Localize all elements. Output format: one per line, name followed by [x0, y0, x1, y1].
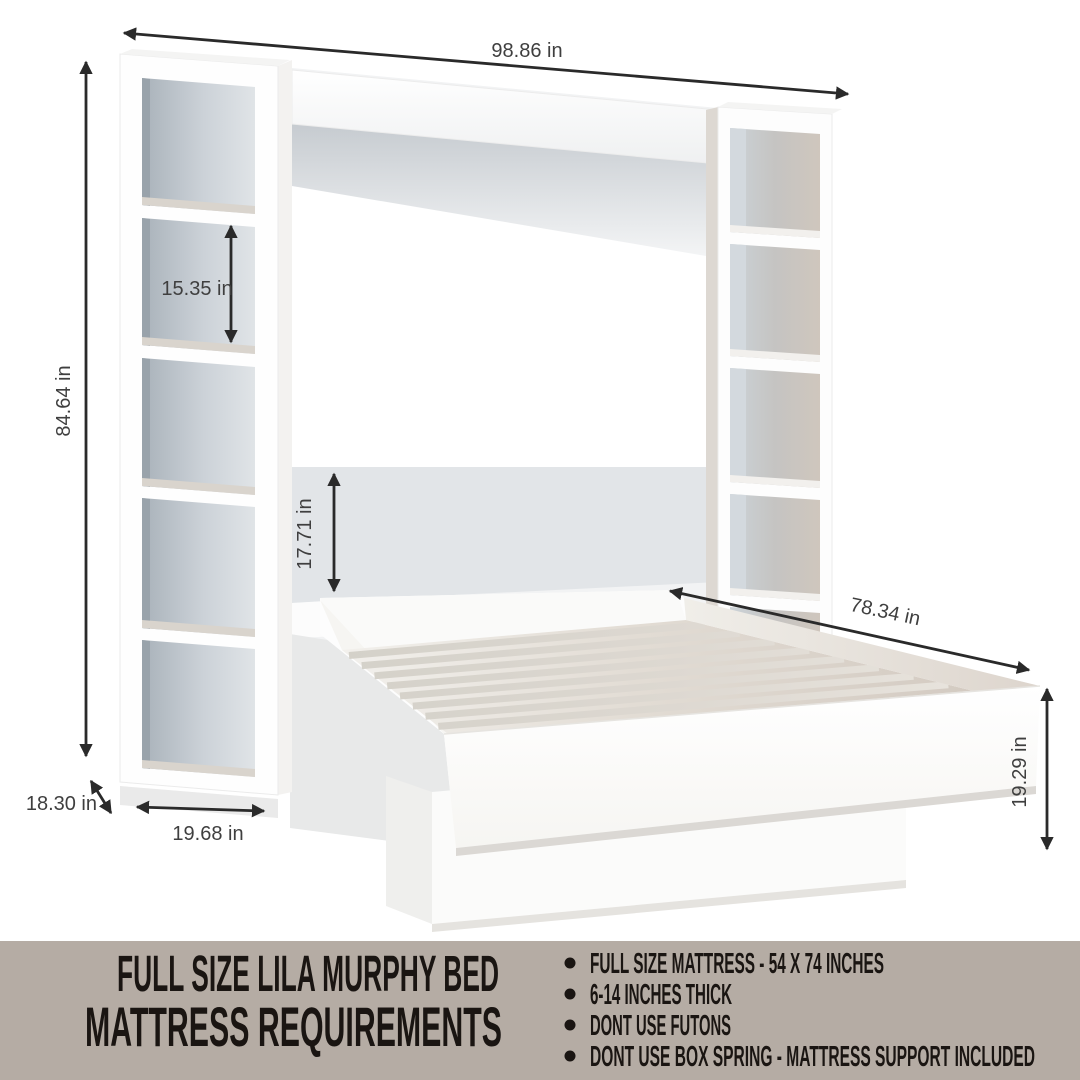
pedestal-side-face [386, 776, 432, 924]
tower-depth-label: 18.30 in [26, 793, 97, 815]
panel-height-label: 17.71 in [294, 498, 316, 569]
bullet-item-2: 6-14 INCHES THICK [590, 979, 732, 1011]
banner-title-line2: MATTRESS REQUIREMENTS [85, 995, 502, 1058]
left-tower-cubbies [142, 78, 255, 777]
murphy-bed-diagram: 98.86 in 84.64 in 15.35 in 17.71 in 78.3… [0, 0, 1080, 1080]
bullet-dot [565, 958, 576, 969]
cubby-height-label: 15.35 in [161, 278, 232, 300]
overall-width-label: 98.86 in [491, 40, 562, 62]
overall-height-label: 84.64 in [53, 365, 75, 436]
tower-width-label: 19.68 in [172, 823, 243, 845]
bullet-dot [565, 1051, 576, 1062]
bullet-item-3: DONT USE FUTONS [590, 1010, 731, 1042]
lower-gray-band [292, 467, 718, 603]
banner-title-line1: FULL SIZE LILA MURPHY BED [117, 945, 499, 1002]
left-tower-side-face [278, 60, 292, 795]
bullet-dot [565, 989, 576, 1000]
product-dimension-image: 98.86 in 84.64 in 15.35 in 17.71 in 78.3… [0, 0, 1080, 1080]
right-tower-side-face [706, 107, 718, 644]
bullet-item-1: FULL SIZE MATTRESS - 54 X 74 INCHES [590, 948, 884, 980]
bullet-item-4: DONT USE BOX SPRING - MATTRESS SUPPORT I… [590, 1041, 1035, 1073]
left-shelf-tower [120, 49, 292, 818]
bed-height-label: 19.29 in [1009, 736, 1031, 807]
info-banner: FULL SIZE LILA MURPHY BED MATTRESS REQUI… [0, 941, 1080, 1080]
bullet-dot [565, 1020, 576, 1031]
